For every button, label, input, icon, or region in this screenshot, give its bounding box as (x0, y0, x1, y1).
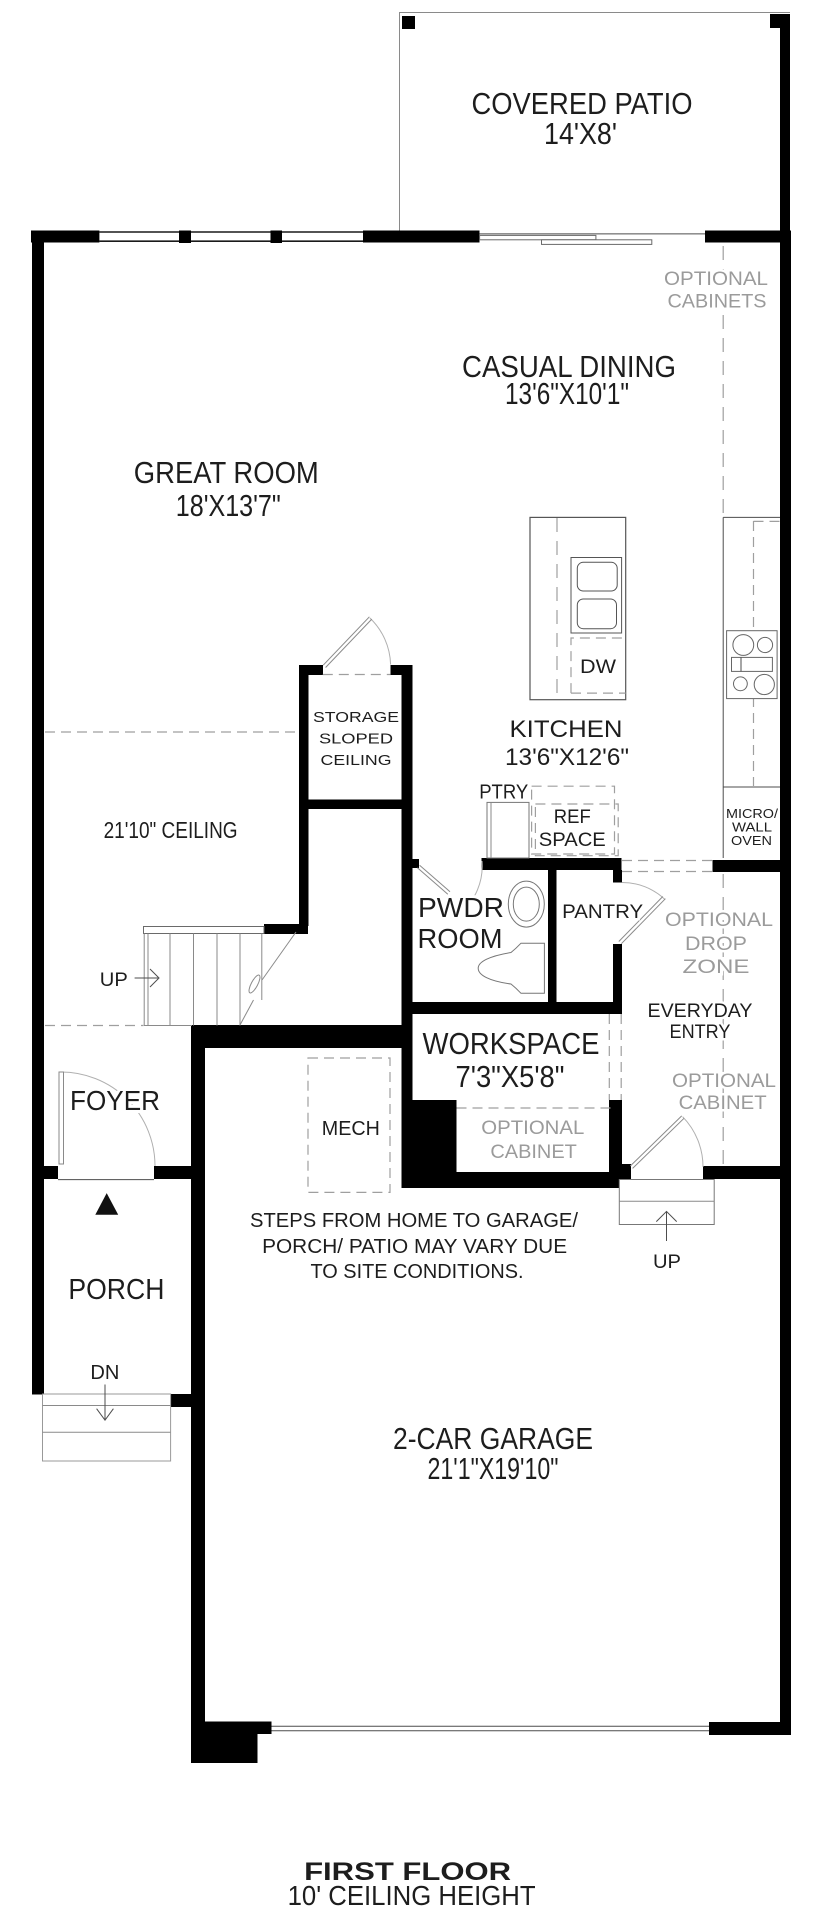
svg-text:OPTIONAL: OPTIONAL (672, 1070, 776, 1092)
svg-text:WALL: WALL (732, 821, 772, 835)
svg-text:EVERYDAY: EVERYDAY (648, 1000, 753, 1022)
svg-text:CEILING: CEILING (321, 752, 392, 769)
svg-text:13'6"X10'1": 13'6"X10'1" (505, 376, 629, 411)
svg-text:PANTRY: PANTRY (562, 901, 643, 923)
svg-text:21'1"X19'10": 21'1"X19'10" (428, 1451, 559, 1486)
svg-text:PWDR: PWDR (418, 892, 504, 923)
svg-text:OPTIONAL: OPTIONAL (481, 1117, 584, 1139)
svg-text:ZONE: ZONE (683, 956, 750, 978)
svg-text:OVEN: OVEN (731, 834, 772, 848)
svg-text:10' CEILING HEIGHT: 10' CEILING HEIGHT (288, 1880, 536, 1911)
svg-text:STORAGE: STORAGE (313, 709, 399, 726)
svg-text:MECH: MECH (322, 1118, 380, 1140)
svg-text:7'3"X5'8": 7'3"X5'8" (456, 1059, 565, 1094)
svg-text:CABINETS: CABINETS (668, 291, 767, 313)
svg-text:OPTIONAL: OPTIONAL (664, 268, 768, 290)
svg-text:UP: UP (653, 1251, 681, 1273)
svg-text:PORCH/ PATIO MAY VARY DUE: PORCH/ PATIO MAY VARY DUE (262, 1236, 567, 1258)
svg-text:GREAT ROOM: GREAT ROOM (134, 455, 319, 490)
svg-text:SPACE: SPACE (539, 830, 606, 851)
svg-text:ROOM: ROOM (418, 923, 503, 954)
svg-text:13'6"X12'6": 13'6"X12'6" (505, 744, 629, 771)
svg-text:SLOPED: SLOPED (319, 731, 393, 748)
svg-text:KITCHEN: KITCHEN (510, 716, 623, 743)
svg-text:DN: DN (90, 1362, 119, 1384)
svg-text:DW: DW (580, 656, 617, 678)
svg-text:CABINET: CABINET (679, 1092, 767, 1114)
svg-text:CABINET: CABINET (490, 1141, 577, 1163)
svg-text:REF: REF (554, 807, 591, 828)
svg-text:OPTIONAL: OPTIONAL (665, 909, 773, 931)
svg-text:18'X13'7": 18'X13'7" (176, 488, 281, 523)
svg-text:ENTRY: ENTRY (670, 1021, 731, 1043)
svg-text:PORCH: PORCH (68, 1274, 164, 1306)
svg-text:UP: UP (100, 969, 128, 991)
svg-text:MICRO/: MICRO/ (726, 807, 779, 821)
svg-text:WORKSPACE: WORKSPACE (423, 1026, 600, 1061)
svg-text:14'X8': 14'X8' (544, 116, 617, 151)
svg-text:FOYER: FOYER (70, 1085, 160, 1116)
svg-text:DROP: DROP (685, 933, 747, 955)
svg-text:PTRY: PTRY (479, 782, 528, 804)
svg-text:STEPS FROM HOME TO GARAGE/: STEPS FROM HOME TO GARAGE/ (250, 1210, 578, 1232)
svg-text:TO SITE CONDITIONS.: TO SITE CONDITIONS. (311, 1261, 524, 1283)
svg-text:21'10" CEILING: 21'10" CEILING (104, 817, 238, 843)
